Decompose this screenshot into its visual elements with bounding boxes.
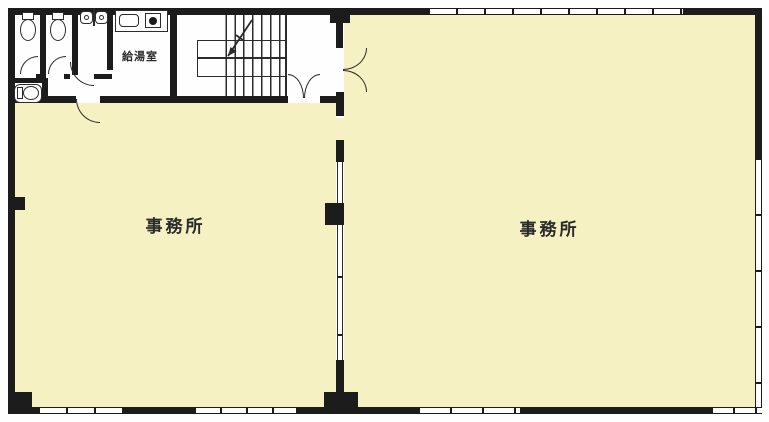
basin-divider (93, 8, 95, 26)
corner-column-bottom-left (8, 392, 32, 414)
office-left-label: 事務所 (15, 217, 336, 243)
wall-wc-room-right (42, 83, 48, 96)
kitchenette-label: 給湯室 (108, 51, 172, 67)
basin-icon (95, 11, 108, 24)
door-arc-toilet-entry (70, 62, 94, 86)
partition-glass-wall (337, 162, 343, 360)
wall-stall-front-3 (94, 74, 112, 79)
outer-wall-left (8, 8, 15, 414)
outer-wall-bottom-2 (122, 407, 196, 414)
wall-pier-left (15, 197, 25, 210)
office-connecting-opening (336, 118, 344, 140)
kitchen-counter (115, 10, 168, 32)
window-bottom-left-2 (196, 407, 296, 414)
wall-stall-divider-1 (40, 15, 46, 75)
toilet-bowl (23, 86, 39, 100)
urinal-toilet-icon (14, 84, 42, 103)
partition-top-block (336, 140, 344, 162)
door-arc-stall-2 (48, 56, 66, 74)
window-top (430, 8, 683, 15)
toilet-bowl (50, 19, 66, 41)
window-right (755, 160, 762, 407)
toilet-bowl (20, 19, 36, 41)
door-arc-hall-double-right (304, 74, 320, 98)
outer-wall-bottom-3 (296, 407, 420, 414)
column-top-partition (330, 15, 350, 23)
room-office-right-floor (344, 15, 755, 407)
basin-icon (80, 11, 93, 24)
outer-wall-top-right (683, 8, 762, 15)
door-arc-hall-double-left (288, 74, 304, 98)
wall-stall-front-2 (64, 74, 70, 79)
toilet-icon (18, 12, 38, 42)
window-bottom-right-2 (713, 407, 762, 414)
outer-wall-bottom-4 (520, 407, 713, 414)
wall-service-bottom-2 (100, 96, 288, 103)
toilet-icon (48, 12, 68, 42)
stove-icon (145, 13, 161, 28)
window-bottom-right-1 (420, 407, 520, 414)
room-office-left-floor (15, 103, 336, 407)
office-right-label: 事務所 (344, 220, 755, 246)
floor-plan-canvas: 給湯室 事務所 事務所 (0, 0, 769, 422)
stair-direction-arrow-icon (216, 14, 262, 66)
door-arc-stall-1 (20, 56, 38, 74)
outer-wall-right-upper (755, 8, 762, 160)
partition-bottom-block (336, 360, 344, 407)
kitchen-sink-icon (119, 14, 139, 27)
wall-hall-right-lower (336, 92, 344, 116)
window-bottom-left-1 (40, 407, 122, 414)
